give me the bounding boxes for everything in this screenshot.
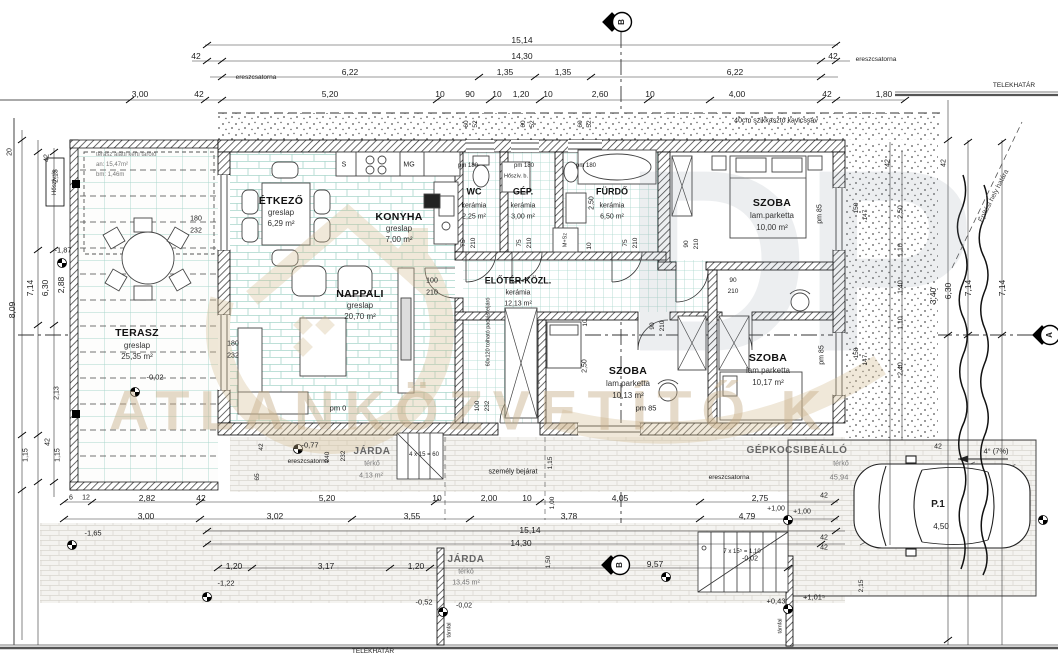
watermark-text: ATLANKÖZVETÍTŐ K: [109, 378, 831, 443]
dim-label: 1,20: [513, 90, 530, 99]
property-line-label: TELEKHATÁR: [352, 649, 394, 656]
level-label: +1,00: [767, 506, 785, 513]
door-size-label: 75: [623, 239, 630, 246]
dim-label: 2,00: [481, 494, 498, 503]
parapet-label: pm 85: [817, 204, 824, 223]
stairs-label: 7 x 15⁵ = 1,10: [723, 549, 760, 555]
dim-label: 90: [465, 90, 474, 99]
dim-label: 3,17: [318, 562, 335, 571]
room-name: TERASZ: [115, 328, 159, 339]
retaining-wall-left: [437, 548, 444, 645]
room-name: FÜRDŐ: [596, 188, 628, 197]
gutter-label: ereszcsatorna: [709, 475, 750, 482]
dim-label: 42: [822, 90, 831, 99]
parking-surface: térkő: [833, 461, 849, 468]
dim-label: 1,00: [550, 497, 557, 510]
dim-label: 15,14: [511, 36, 532, 45]
room-floor: térkő: [364, 461, 380, 468]
dim-label: 6,22: [727, 68, 744, 77]
window-size-label: 147: [863, 210, 870, 221]
dim-label: 1,20: [226, 562, 243, 571]
dim-label: 2,75: [752, 494, 769, 503]
dim-label: 6: [69, 495, 73, 502]
room-name: ÉTKEZŐ: [259, 196, 303, 207]
dim-label: 3,02: [267, 512, 284, 521]
parking-space-label: P.1: [931, 500, 945, 510]
dim-label: 10: [432, 494, 441, 503]
level-label: -0,02: [456, 603, 472, 610]
dim-label: 3,78: [561, 512, 578, 521]
dim-label: 10: [583, 319, 590, 326]
room-name: NAPPALI: [336, 289, 383, 300]
dim-label: 42: [820, 535, 828, 542]
room-floor: lam.parketta: [746, 367, 790, 375]
storage-label: terasz alatti kerti tároló: [96, 152, 156, 158]
parapet-label: pm 180: [458, 163, 478, 169]
room-floor: lam.parketta: [606, 380, 650, 388]
dim-label: 20: [7, 148, 14, 156]
dim-label: 1,15: [55, 448, 62, 462]
dim-label: 3,55: [404, 512, 421, 521]
heat-pump-indoor-label: Hőszív. b.: [504, 174, 528, 180]
opening-size-label: 180: [190, 216, 202, 223]
parking-name: GÉPKOCSIBEÁLLÓ: [747, 446, 848, 456]
dim-label: 9,57: [647, 560, 664, 569]
room-area: 25,35 m²: [121, 353, 153, 361]
dim-label: 10: [435, 90, 444, 99]
room-area: 10,13 m²: [612, 392, 644, 400]
room-floor: greslap: [347, 302, 373, 310]
section-letter-b: B: [616, 562, 624, 568]
door-size-label: 90: [650, 322, 657, 329]
room-area: 2,25 m²: [462, 214, 486, 221]
room-floor: lam.parketta: [750, 212, 794, 220]
dim-label: 1,40: [898, 280, 905, 294]
dim-label: 2,13: [54, 386, 61, 400]
dim-label: 1,10: [898, 316, 905, 330]
dim-label: 42: [191, 52, 200, 61]
room-area: 6,50 m²: [600, 214, 624, 221]
dim-label: 1,80: [876, 90, 893, 99]
heat-pump-label: Hőszív. k.: [52, 169, 58, 195]
retaining-wall-label: támfal: [778, 619, 784, 634]
slope-label: 4° (7%): [983, 447, 1008, 455]
dim-label: 42: [828, 52, 837, 61]
dim-label: 8,09: [8, 302, 17, 319]
window-size-label: 158: [854, 348, 861, 359]
window-size-label: 147: [863, 355, 870, 366]
dim-label: 10: [543, 90, 552, 99]
room-area: 20,70 m²: [344, 313, 376, 321]
gravel-strip-label: 40cm szikkasztó kavicssáv: [734, 118, 818, 125]
floorplan-canvas: DP ATLANKÖZVETÍTŐ K 15,14 14,30 42 42 er…: [0, 0, 1058, 657]
dim-label: 60: [578, 120, 585, 127]
level-label: -1,65: [84, 529, 101, 537]
dim-label: 42: [934, 444, 942, 451]
room-floor: kerámia: [462, 203, 487, 210]
dim-label: 1,35: [497, 68, 514, 77]
dim-label: 4,05: [612, 494, 629, 503]
room-floor: greslap: [268, 209, 294, 217]
door-size-label: 210: [471, 238, 478, 249]
room-area: 6,29 m²: [267, 220, 294, 228]
parking-length: 4,50: [933, 523, 949, 531]
opening-size-label: 180: [227, 341, 239, 348]
dim-label: 10: [587, 242, 594, 249]
dim-label: 2,60: [592, 90, 609, 99]
gutter-label: ereszcsatorna: [288, 459, 329, 466]
parapet-label: pm 180: [576, 163, 596, 169]
level-label: +1,00: [793, 509, 811, 516]
door-size-label: 210: [527, 238, 534, 249]
dim-label: 2,88: [57, 277, 66, 294]
door-size-label: 75: [517, 239, 524, 246]
door-size-label: 232: [485, 401, 492, 412]
dim-label: 1,15: [23, 448, 30, 462]
door-size-label: 100: [426, 278, 438, 285]
room-name: WC: [467, 188, 482, 197]
room-name: SZOBA: [609, 366, 647, 377]
dim-label: 42: [941, 159, 948, 167]
dim-label: 42: [885, 159, 892, 167]
dim-label: 15,14: [519, 526, 540, 535]
dim-label: 2,82: [139, 494, 156, 503]
dim-label: 240: [325, 452, 332, 463]
dim-label: 12: [82, 495, 90, 502]
dim-label: 1,10: [898, 243, 905, 257]
watermark-letters: DP: [622, 113, 967, 412]
room-floor: kerámia: [600, 203, 625, 210]
room-area: 13,45 m²: [452, 580, 480, 587]
wc-fixtures: [473, 156, 489, 187]
dim-label: 7,14: [998, 280, 1007, 297]
door-size-label: 210: [633, 238, 640, 249]
dim-label: 3,00: [132, 90, 149, 99]
entrance-label: személy bejárat: [488, 469, 537, 476]
level-label: +0,43: [767, 597, 786, 605]
dim-label: 1,20: [408, 562, 425, 571]
room-area: 12,13 m²: [504, 301, 532, 308]
dim-label: 42: [820, 545, 828, 552]
door-size-label: 90: [684, 240, 691, 247]
room-name: JÁRDA: [448, 555, 485, 565]
washer-label: M+Sz: [563, 233, 569, 247]
room-area: 4,13 m²: [359, 473, 383, 480]
parapet-label: pm 85: [636, 404, 657, 412]
property-line-label: TELEKHATÁR: [993, 83, 1035, 90]
storage-label: bm: 1,46m: [96, 172, 124, 178]
room-floor: greslap: [386, 225, 412, 233]
dim-label: 52: [473, 120, 480, 127]
dim-label: 6,30: [41, 280, 50, 297]
dim-label: 4,79: [739, 512, 756, 521]
dim-label: 3,40: [929, 288, 938, 305]
dim-label: 42: [259, 443, 266, 450]
dim-label: 1,35: [555, 68, 572, 77]
dim-label: 10: [522, 494, 531, 503]
door-size-label: 210: [660, 321, 667, 332]
level-label: -0,02: [742, 556, 758, 563]
room-name: GÉP.: [513, 188, 533, 197]
door-size-label: 210: [426, 290, 438, 297]
opening-size-label: 232: [190, 228, 202, 235]
dim-label: 52: [587, 120, 594, 127]
dim-label: 14,30: [510, 539, 531, 548]
dim-label: 6,22: [342, 68, 359, 77]
dim-label: 2,40: [898, 362, 905, 376]
level-label: -1,87: [54, 246, 71, 254]
level-label: -1,22: [217, 579, 234, 587]
dim-label: 52: [530, 120, 537, 127]
section-letter-b: B: [618, 19, 626, 25]
room-name: ELŐTÉR-KÖZL.: [485, 277, 552, 286]
dim-label: 10: [492, 90, 501, 99]
dim-label: 42: [45, 438, 52, 446]
fridge-label: MG: [403, 162, 414, 169]
sink-label: S: [342, 162, 347, 169]
room-name: SZOBA: [749, 353, 787, 364]
door-size-label: 75: [461, 239, 468, 246]
dim-label: 7,14: [26, 280, 35, 297]
parking-area: 45,94: [830, 473, 849, 481]
dim-label: 2,50: [898, 205, 905, 219]
retaining-wall-label: támfal: [447, 623, 453, 638]
room-area: 10,00 m²: [756, 224, 788, 232]
room-floor: térkő: [458, 569, 474, 576]
gutter-label: ereszcsatorna: [236, 75, 277, 82]
dim-label: 5,20: [322, 90, 339, 99]
dim-label: 60: [521, 120, 528, 127]
door-size-label: 90: [729, 278, 736, 285]
dim-label: 42: [820, 493, 828, 500]
dim-label: 14,30: [511, 52, 532, 61]
opening-size-label: 232: [227, 353, 239, 360]
dim-label: 60: [464, 120, 471, 127]
dim-label: 7,14: [964, 280, 973, 297]
parapet-label: pm 85: [819, 345, 826, 364]
door-size-label: 100: [475, 401, 482, 412]
storage-label: an: 15,47m²: [96, 162, 128, 168]
door-size-label: 210: [694, 239, 701, 250]
room-area: 10,17 m²: [752, 379, 784, 387]
room-name: SZOBA: [753, 198, 791, 209]
dim-label: 1,50: [546, 556, 553, 569]
room-area: 3,00 m²: [511, 214, 535, 221]
stairs-label: 4 x 15 = 60: [409, 452, 439, 458]
dim-label: 232: [341, 451, 348, 462]
dim-label: 2,15: [859, 580, 866, 593]
door-size-label: 210: [728, 289, 739, 296]
section-letter-a: A: [1046, 332, 1054, 338]
attic-hatch-label: 60x120 tolható padlásfeljáró: [486, 298, 492, 367]
window-size-label: 150: [854, 203, 861, 214]
room-floor: kerámia: [506, 290, 531, 297]
room-name: KONYHA: [375, 212, 422, 223]
level-label: -0,77: [301, 441, 318, 449]
dim-label: 65: [255, 473, 262, 480]
level-label: +1,01⁵: [803, 593, 825, 601]
gutter-label: ereszcsatorna: [856, 57, 897, 64]
dim-label: 3,00: [138, 512, 155, 521]
room-floor: greslap: [124, 342, 150, 350]
level-label: -0,02: [146, 373, 163, 381]
dim-label: 42: [196, 494, 205, 503]
dim-label: 42: [194, 90, 203, 99]
dim-label: 1,15: [548, 457, 555, 470]
level-label: -0,52: [415, 598, 432, 606]
dim-label: 2,50: [589, 196, 596, 210]
dim-label: 2,50: [582, 359, 589, 373]
room-name: JÁRDA: [354, 447, 391, 457]
dim-label: 5,20: [319, 494, 336, 503]
dim-label: 6,30: [944, 283, 953, 300]
dim-label: 10: [645, 90, 654, 99]
room-floor: kerámia: [511, 203, 536, 210]
room-area: 7,00 m²: [385, 236, 412, 244]
dim-label: 4,00: [729, 90, 746, 99]
dim-label: 42: [44, 154, 51, 162]
parapet-label: pm 180: [514, 163, 534, 169]
parapet-label: pm 0: [330, 404, 347, 412]
